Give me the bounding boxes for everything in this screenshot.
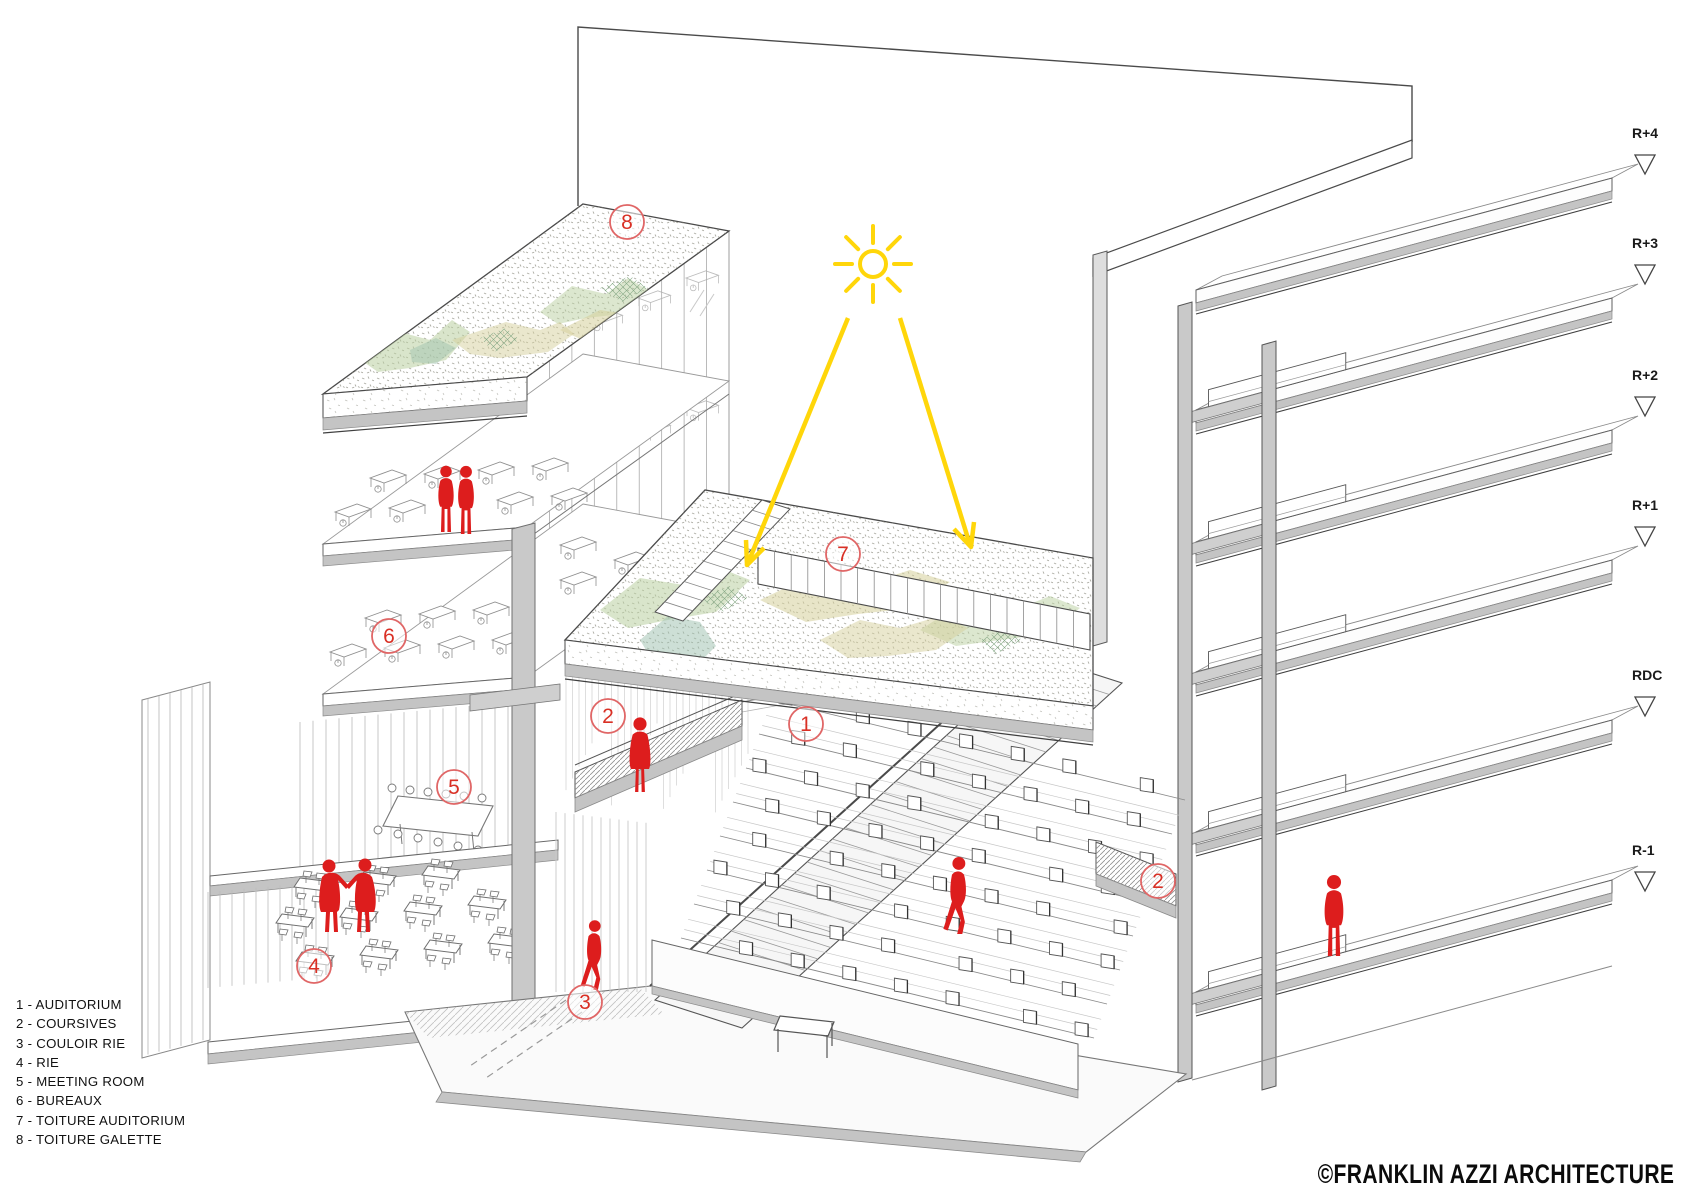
marker-8: 8 — [610, 205, 644, 239]
marker-4: 4 — [297, 949, 331, 983]
legend-item: 5 - MEETING ROOM — [16, 1072, 185, 1091]
level-label-R+1: R+1 — [1632, 497, 1658, 513]
marker-2: 2 — [1141, 864, 1175, 898]
svg-text:4: 4 — [308, 955, 320, 978]
axonometric-drawing: R+4R+3R+2R+1RDCR-1 122345678 — [0, 0, 1700, 1198]
level-triangle-icon — [1635, 265, 1655, 284]
backdrop-wall — [578, 27, 1412, 206]
legend-item: 4 - RIE — [16, 1053, 185, 1072]
copyright-text: ©FRANKLIN AZZI ARCHITECTURE — [1317, 1159, 1674, 1190]
marker-6: 6 — [372, 619, 406, 653]
level-triangle-icon — [1635, 397, 1655, 416]
level-label-R+2: R+2 — [1632, 367, 1658, 383]
svg-text:6: 6 — [383, 625, 395, 648]
legend-item: 3 - COULOIR RIE — [16, 1034, 185, 1053]
diagram-canvas: R+4R+3R+2R+1RDCR-1 122345678 1 - AUDITOR… — [0, 0, 1700, 1198]
level-label-R+3: R+3 — [1632, 235, 1658, 251]
svg-text:7: 7 — [837, 543, 849, 566]
level-label-R-1: R-1 — [1632, 842, 1655, 858]
legend-item: 1 - AUDITORIUM — [16, 995, 185, 1014]
level-label-RDC: RDC — [1632, 667, 1662, 683]
svg-text:1: 1 — [800, 713, 812, 736]
svg-text:3: 3 — [579, 991, 591, 1014]
marker-5: 5 — [437, 770, 471, 804]
level-triangle-icon — [1635, 527, 1655, 546]
person-couloir — [581, 920, 601, 990]
legend: 1 - AUDITORIUM2 - COURSIVES3 - COULOIR R… — [16, 995, 185, 1149]
marker-1: 1 — [789, 707, 823, 741]
level-triangle-icon — [1635, 872, 1655, 891]
level-label-R+4: R+4 — [1632, 125, 1658, 141]
svg-text:5: 5 — [448, 776, 460, 799]
tower-section — [1093, 140, 1638, 1090]
marker-2: 2 — [591, 699, 625, 733]
svg-text:2: 2 — [602, 705, 614, 728]
legend-item: 6 - BUREAUX — [16, 1091, 185, 1110]
svg-text:8: 8 — [621, 211, 633, 234]
legend-item: 7 - TOITURE AUDITORIUM — [16, 1111, 185, 1130]
svg-text:2: 2 — [1152, 870, 1164, 893]
level-labels: R+4R+3R+2R+1RDCR-1 — [1632, 125, 1662, 891]
marker-3: 3 — [568, 985, 602, 1019]
marker-7: 7 — [826, 537, 860, 571]
legend-item: 8 - TOITURE GALETTE — [16, 1130, 185, 1149]
legend-item: 2 - COURSIVES — [16, 1014, 185, 1033]
